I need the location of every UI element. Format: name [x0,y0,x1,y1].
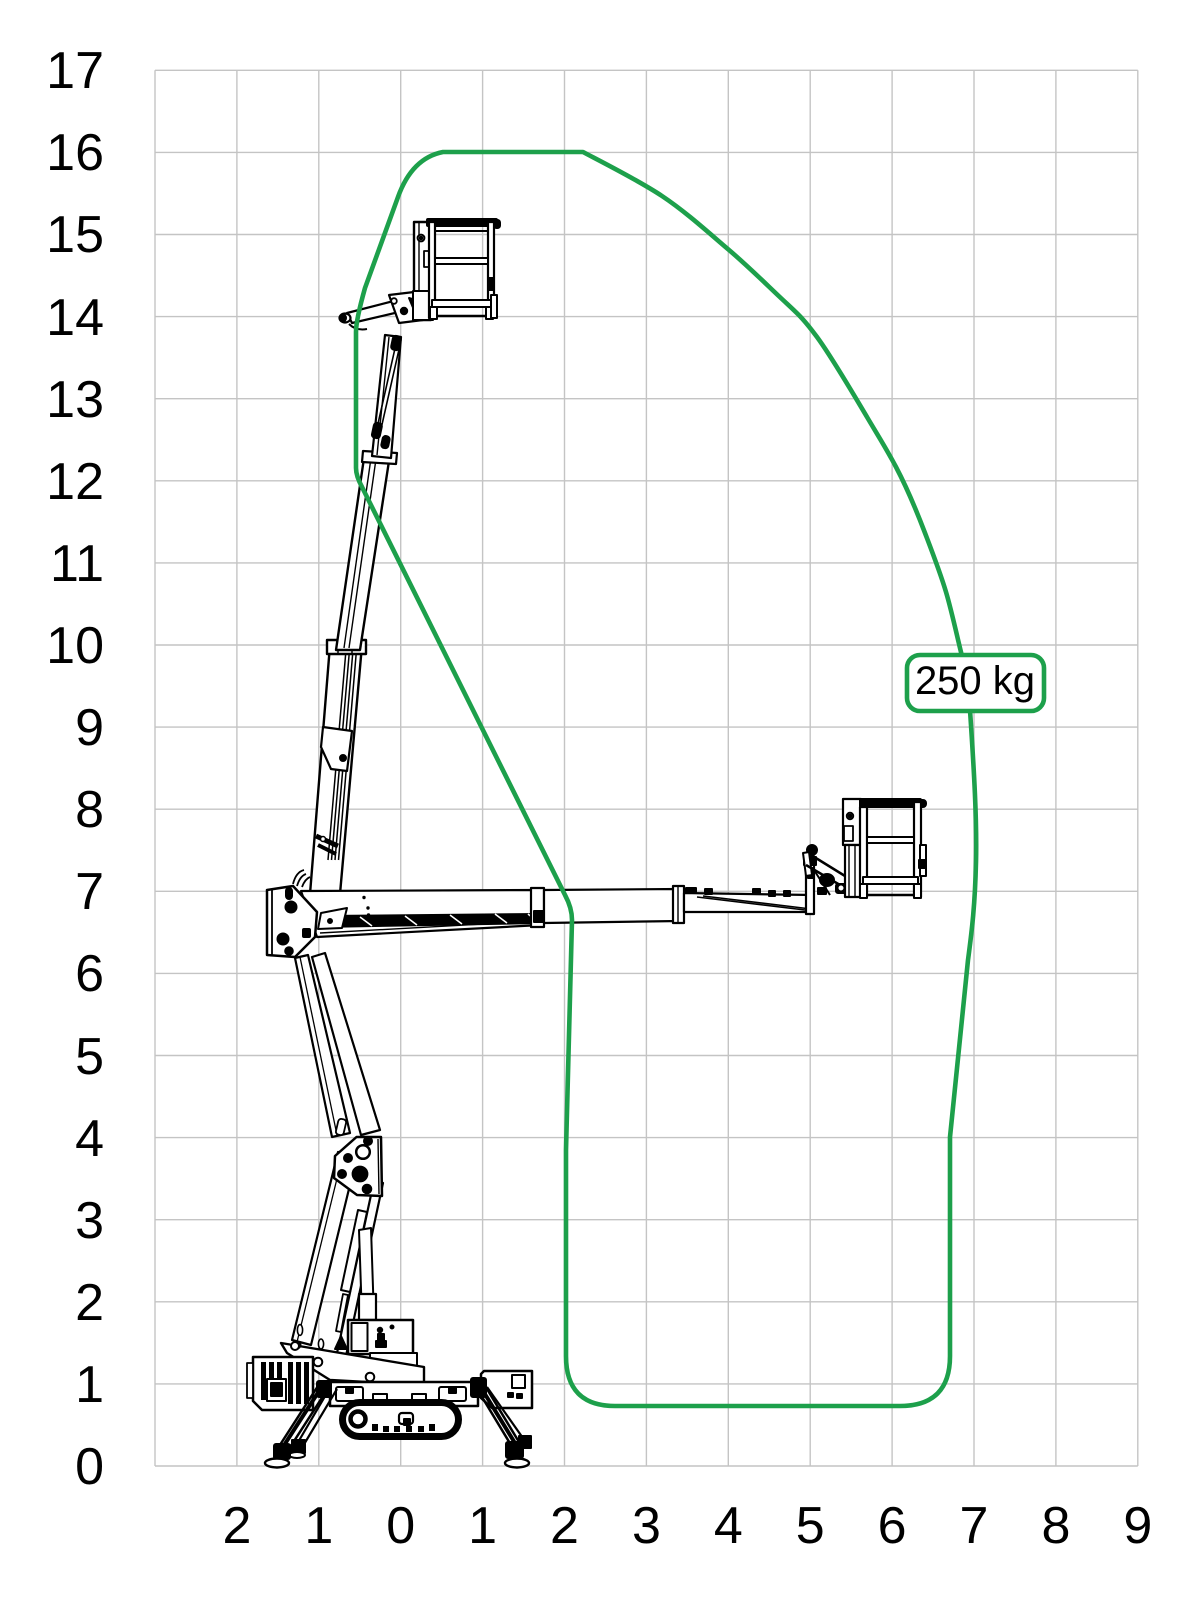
svg-text:1: 1 [468,1497,497,1555]
svg-text:250 kg: 250 kg [915,659,1035,703]
svg-text:7: 7 [75,863,104,921]
svg-text:10: 10 [46,617,104,675]
svg-text:2: 2 [75,1274,104,1332]
svg-text:14: 14 [46,289,104,347]
svg-text:17: 17 [46,42,104,100]
svg-text:13: 13 [46,371,104,429]
svg-text:0: 0 [75,1438,104,1496]
svg-text:6: 6 [75,945,104,1003]
svg-text:5: 5 [75,1028,104,1086]
svg-text:4: 4 [75,1110,104,1168]
svg-text:6: 6 [878,1497,907,1555]
svg-text:2: 2 [222,1497,251,1555]
svg-text:16: 16 [46,124,104,182]
svg-text:3: 3 [632,1497,661,1555]
svg-text:1: 1 [304,1497,333,1555]
svg-text:4: 4 [714,1497,743,1555]
svg-text:11: 11 [50,535,104,593]
svg-text:3: 3 [75,1192,104,1250]
svg-text:8: 8 [75,781,104,839]
svg-text:7: 7 [960,1497,989,1555]
svg-text:9: 9 [1123,1497,1152,1555]
svg-text:1: 1 [75,1356,104,1414]
svg-text:12: 12 [46,453,104,511]
svg-text:5: 5 [796,1497,825,1555]
svg-text:0: 0 [386,1497,415,1555]
svg-text:2: 2 [550,1497,579,1555]
svg-text:15: 15 [46,206,104,264]
svg-text:8: 8 [1041,1497,1070,1555]
svg-text:9: 9 [75,699,104,757]
